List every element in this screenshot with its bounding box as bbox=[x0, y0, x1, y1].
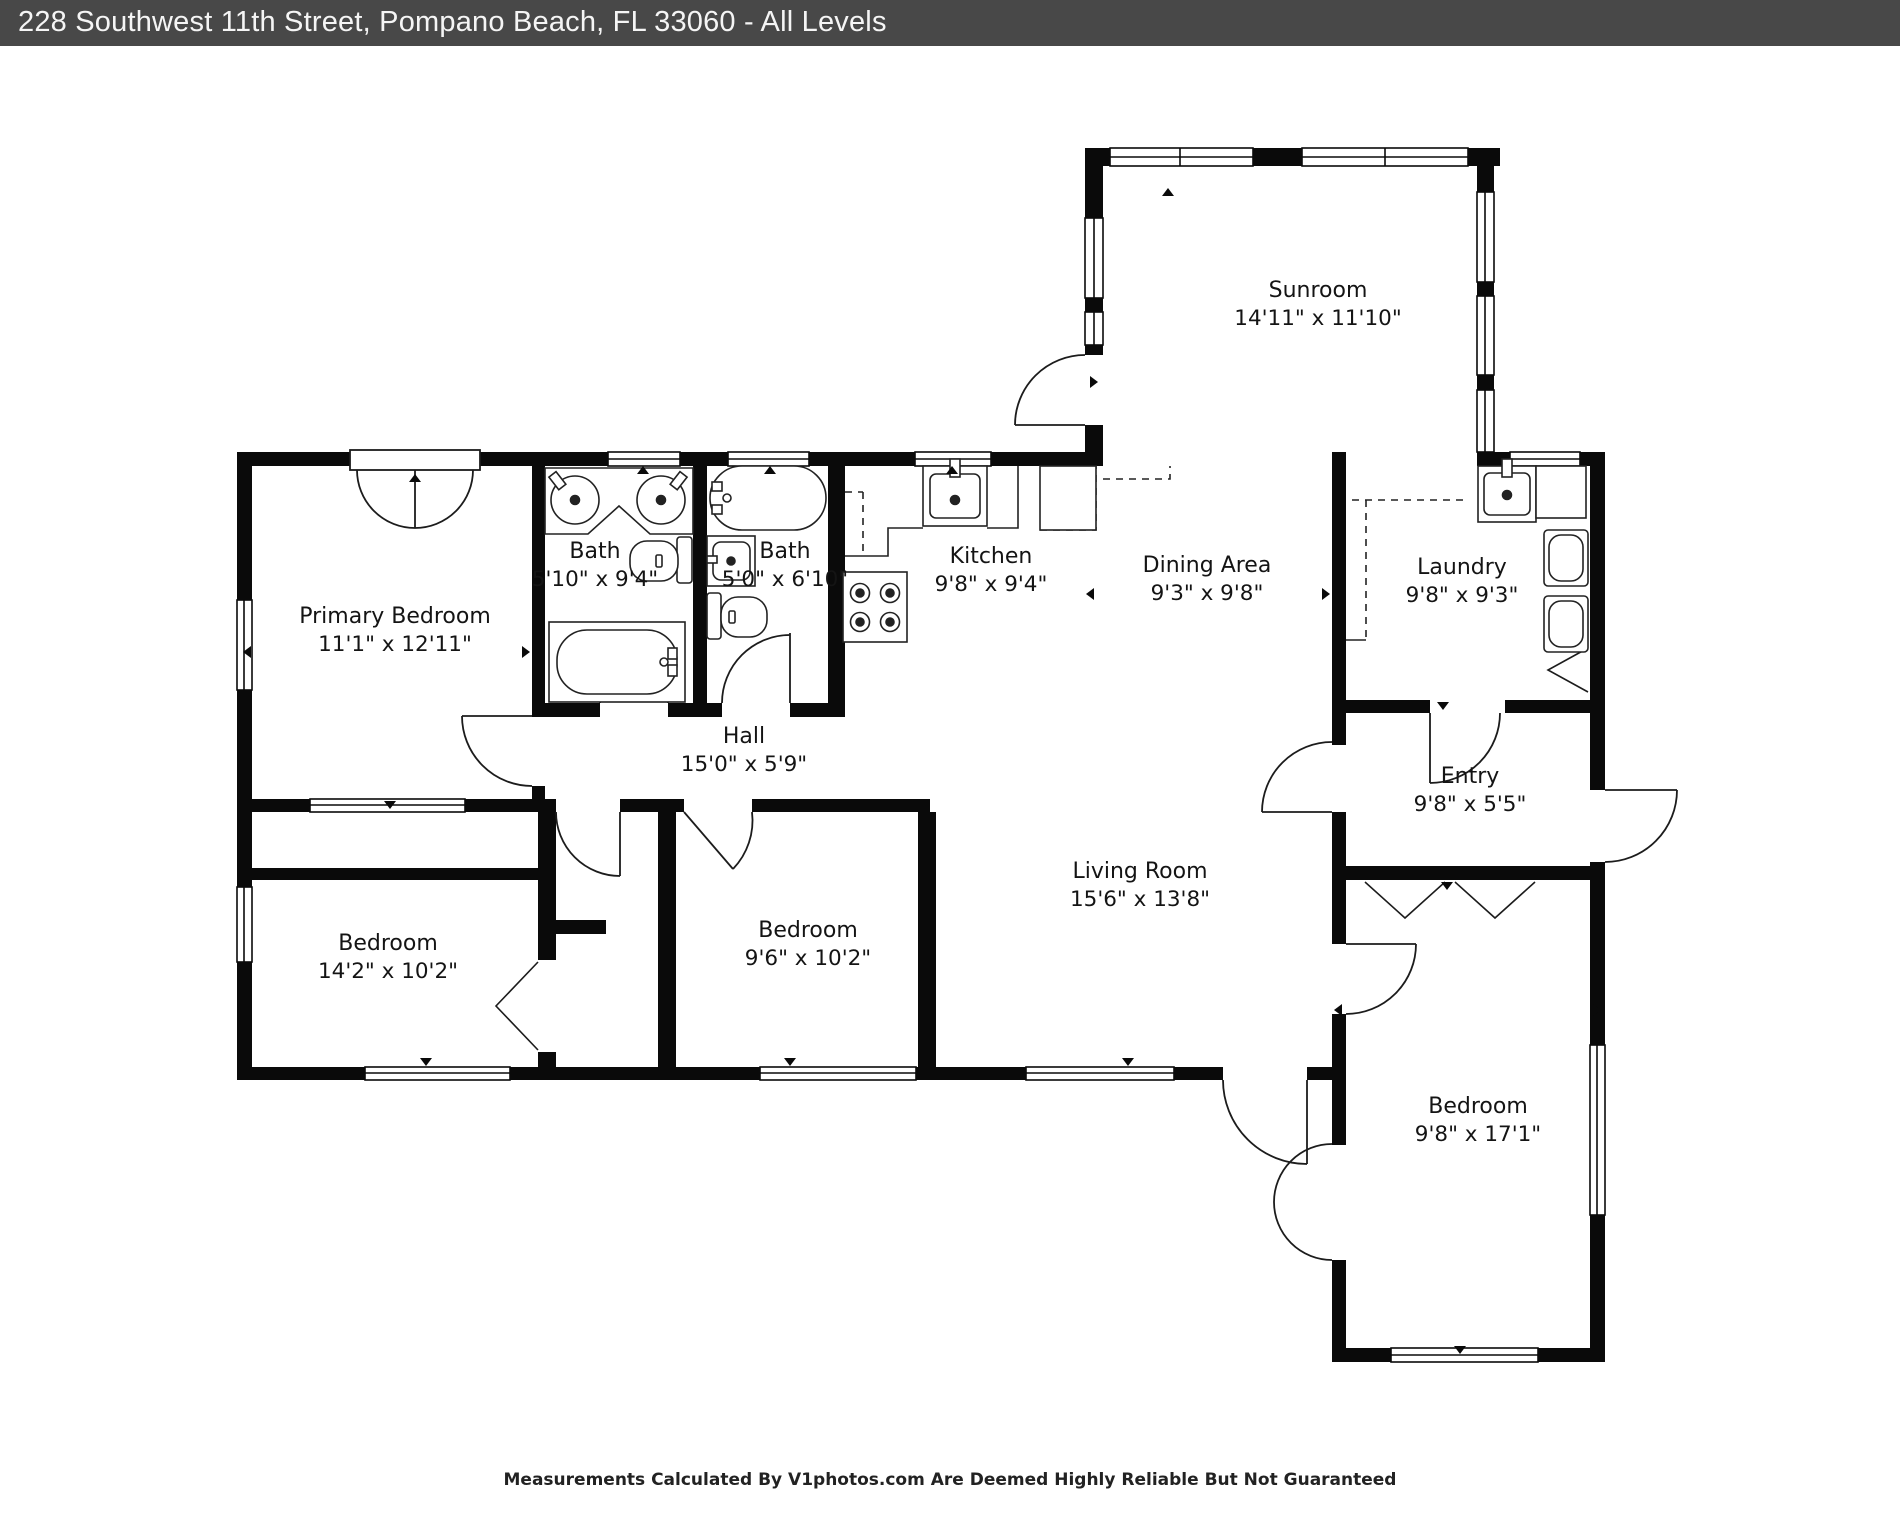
room-label-living-room: Living Room 15'6" x 13'8" bbox=[1070, 858, 1210, 914]
room-dims: 15'6" x 13'8" bbox=[1070, 886, 1210, 914]
front-door-icon bbox=[1605, 790, 1677, 862]
door-swing-icon bbox=[722, 633, 790, 703]
room-label-kitchen: Kitchen 9'8" x 9'4" bbox=[935, 543, 1048, 599]
room-name: Bath bbox=[532, 538, 658, 566]
room-name: Living Room bbox=[1070, 858, 1210, 886]
disclaimer-text: Measurements Calculated By V1photos.com … bbox=[0, 1470, 1900, 1490]
room-dims: 9'8" x 9'3" bbox=[1406, 582, 1519, 610]
room-dims: 9'8" x 9'4" bbox=[935, 571, 1048, 599]
bifold-door-icon bbox=[496, 962, 538, 1050]
washer-icon bbox=[1544, 596, 1588, 652]
room-name: Kitchen bbox=[935, 543, 1048, 571]
room-label-dining-area: Dining Area 9'3" x 9'8" bbox=[1143, 552, 1272, 608]
room-name: Hall bbox=[681, 723, 807, 751]
measure-markers bbox=[243, 188, 1601, 1354]
room-label-bedroom-left: Bedroom 14'2" x 10'2" bbox=[318, 930, 458, 986]
washer-icon bbox=[1544, 530, 1588, 586]
door-swing-icon bbox=[1223, 1080, 1307, 1164]
room-name: Bedroom bbox=[1415, 1093, 1541, 1121]
door-swing-icon bbox=[462, 716, 532, 786]
door-swing-icon bbox=[1346, 944, 1416, 1014]
room-dims: 9'8" x 5'5" bbox=[1414, 791, 1527, 819]
sink-icon bbox=[1478, 459, 1536, 522]
room-name: Dining Area bbox=[1143, 552, 1272, 580]
double-door-icon bbox=[1274, 1144, 1332, 1260]
room-name: Bedroom bbox=[318, 930, 458, 958]
vanity-icon bbox=[545, 468, 693, 534]
room-label-entry: Entry 9'8" x 5'5" bbox=[1414, 763, 1527, 819]
bathtub-icon bbox=[710, 466, 826, 530]
room-name: Primary Bedroom bbox=[299, 603, 491, 631]
floorplan-canvas bbox=[0, 0, 1900, 1536]
room-label-primary-bedroom: Primary Bedroom 11'1" x 12'11" bbox=[299, 603, 491, 659]
room-dims: 14'11" x 11'10" bbox=[1234, 305, 1401, 333]
closet-double-door-icon bbox=[350, 450, 480, 528]
room-dims: 9'3" x 9'8" bbox=[1143, 580, 1272, 608]
door-swing-icon bbox=[1015, 355, 1085, 425]
room-dims: 14'2" x 10'2" bbox=[318, 958, 458, 986]
cabinet-icon bbox=[1536, 466, 1586, 518]
room-name: Bath bbox=[722, 538, 848, 566]
bathtub-icon bbox=[549, 622, 685, 702]
room-name: Bedroom bbox=[745, 917, 871, 945]
room-label-laundry: Laundry 9'8" x 9'3" bbox=[1406, 554, 1519, 610]
room-label-bath-1: Bath 5'10" x 9'4" bbox=[532, 538, 658, 594]
room-label-bath-2: Bath 5'0" x 6'10" bbox=[722, 538, 848, 594]
room-label-sunroom: Sunroom 14'11" x 11'10" bbox=[1234, 277, 1401, 333]
room-name: Laundry bbox=[1406, 554, 1519, 582]
room-label-bedroom-right: Bedroom 9'8" x 17'1" bbox=[1415, 1093, 1541, 1149]
room-dims: 11'1" x 12'11" bbox=[299, 631, 491, 659]
door-swing-icon bbox=[1262, 742, 1332, 812]
room-dims: 5'0" x 6'10" bbox=[722, 566, 848, 594]
room-dims: 9'6" x 10'2" bbox=[745, 945, 871, 973]
stove-icon bbox=[843, 572, 907, 642]
toilet-icon bbox=[707, 593, 767, 639]
room-name: Entry bbox=[1414, 763, 1527, 791]
room-name: Sunroom bbox=[1234, 277, 1401, 305]
door-swing-icon bbox=[556, 812, 620, 876]
floorplan-page: 228 Southwest 11th Street, Pompano Beach… bbox=[0, 0, 1900, 1536]
room-dims: 5'10" x 9'4" bbox=[532, 566, 658, 594]
closet-chevron-icon bbox=[1548, 648, 1588, 692]
room-label-hall: Hall 15'0" x 5'9" bbox=[681, 723, 807, 779]
closet-chevron-icon bbox=[1365, 882, 1535, 918]
fridge-icon bbox=[1040, 466, 1096, 530]
room-dims: 9'8" x 17'1" bbox=[1415, 1121, 1541, 1149]
sink-icon bbox=[923, 459, 987, 526]
room-dims: 15'0" x 5'9" bbox=[681, 751, 807, 779]
door-swing-icon bbox=[684, 812, 753, 869]
room-label-bedroom-middle: Bedroom 9'6" x 10'2" bbox=[745, 917, 871, 973]
